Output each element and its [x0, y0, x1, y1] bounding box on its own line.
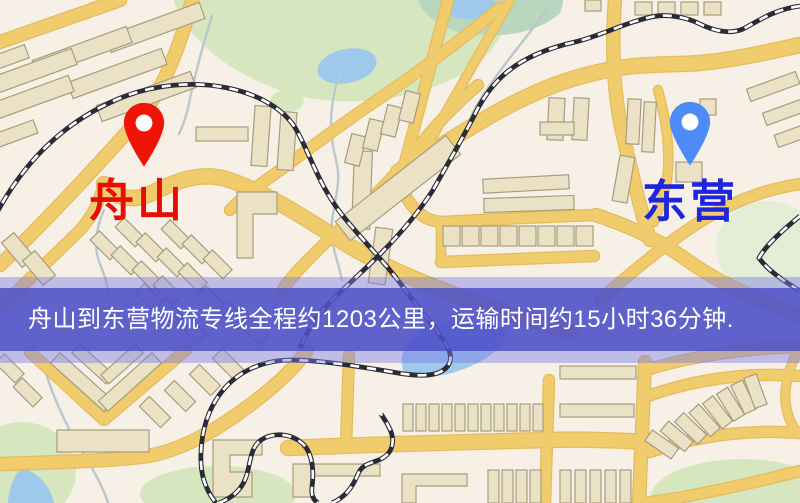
- info-banner-core: 舟山到东营物流专线全程约1203公里，运输时间约15小时36分钟.: [0, 288, 800, 351]
- map[interactable]: 舟山到东营物流专线全程约1203公里，运输时间约15小时36分钟. 舟山 东营: [0, 0, 800, 503]
- red-map-pin-icon: [121, 100, 167, 168]
- marker-pin-dongying[interactable]: [667, 99, 713, 167]
- blue-map-pin-icon: [667, 99, 713, 167]
- marker-pin-zhoushan[interactable]: [121, 100, 167, 168]
- route-info-text: 舟山到东营物流专线全程约1203公里，运输时间约15小时36分钟.: [0, 288, 800, 351]
- city-label-dongying: 东营: [642, 179, 738, 224]
- city-label-zhoushan: 舟山: [89, 178, 185, 223]
- info-banner: 舟山到东营物流专线全程约1203公里，运输时间约15小时36分钟.: [0, 277, 800, 363]
- map-canvas: [0, 0, 800, 503]
